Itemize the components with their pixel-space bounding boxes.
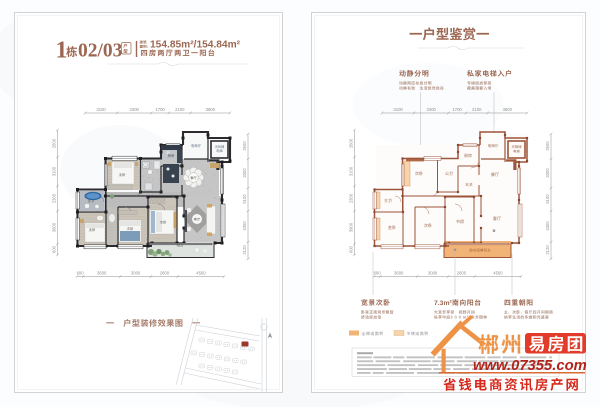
svg-text:600: 600 <box>77 271 85 276</box>
svg-text:1700: 1700 <box>452 107 462 112</box>
svg-text:4300: 4300 <box>545 221 550 231</box>
svg-text:4500: 4500 <box>493 271 503 276</box>
svg-text:3100: 3100 <box>96 107 106 112</box>
svg-text:3000: 3000 <box>131 271 141 276</box>
svg-text:3600: 3600 <box>394 271 404 276</box>
svg-text:600: 600 <box>374 271 382 276</box>
svg-text:3900: 3900 <box>52 222 57 232</box>
svg-text:3300: 3300 <box>130 107 140 112</box>
svg-text:www.07355.com: www.07355.com <box>473 358 587 374</box>
svg-text:3100: 3100 <box>52 166 57 176</box>
svg-text:2600: 2600 <box>242 141 247 151</box>
svg-text:1: 1 <box>56 38 68 64</box>
svg-text:02/03: 02/03 <box>78 41 123 62</box>
svg-text:3800: 3800 <box>206 107 216 112</box>
svg-text:2600: 2600 <box>457 271 467 276</box>
svg-text:4300: 4300 <box>242 221 247 231</box>
svg-text:3900: 3900 <box>349 222 354 232</box>
svg-text:2600: 2600 <box>52 138 57 148</box>
svg-text:2600: 2600 <box>349 138 354 148</box>
svg-text:600: 600 <box>349 245 354 253</box>
svg-text:3300: 3300 <box>427 107 437 112</box>
svg-text:5100: 5100 <box>242 194 247 204</box>
svg-text:4500: 4500 <box>196 271 206 276</box>
svg-text:3100: 3100 <box>349 166 354 176</box>
svg-text:2600: 2600 <box>160 271 170 276</box>
svg-text:2120: 2120 <box>545 245 550 255</box>
svg-text:3800: 3800 <box>503 107 513 112</box>
svg-text:2100: 2100 <box>472 107 482 112</box>
svg-text:3100: 3100 <box>393 107 403 112</box>
svg-text:2300: 2300 <box>349 193 354 203</box>
svg-text:600: 600 <box>52 245 57 253</box>
svg-text:3300: 3300 <box>242 168 247 178</box>
svg-text:154.85m²/154.84m²: 154.85m²/154.84m² <box>150 40 241 51</box>
svg-text:7.3m²: 7.3m² <box>434 300 452 307</box>
svg-text:5100: 5100 <box>545 194 550 204</box>
svg-text:3000: 3000 <box>428 271 438 276</box>
svg-text:2100: 2100 <box>175 107 185 112</box>
svg-text:1700: 1700 <box>155 107 165 112</box>
svg-text:2120: 2120 <box>242 245 247 255</box>
svg-text:3300: 3300 <box>545 168 550 178</box>
svg-text:2600: 2600 <box>545 141 550 151</box>
svg-text:2300: 2300 <box>52 193 57 203</box>
svg-text:3600: 3600 <box>97 271 107 276</box>
